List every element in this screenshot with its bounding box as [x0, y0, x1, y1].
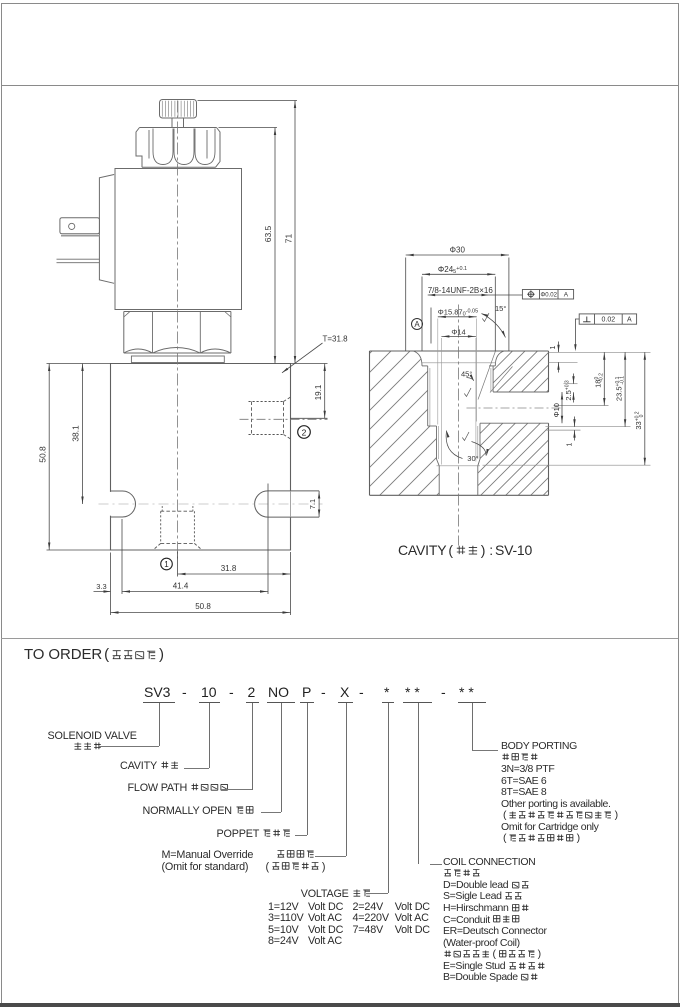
svg-text:41.4: 41.4	[173, 582, 189, 591]
svg-text:2: 2	[302, 427, 307, 437]
svg-text:A: A	[627, 317, 632, 324]
svg-text:23.5+0.1-0.1: 23.5+0.1-0.1	[615, 376, 626, 401]
svg-text:33+0.20: 33+0.20	[634, 411, 645, 429]
svg-text:7/8-14UNF-2B×16: 7/8-14UNF-2B×16	[428, 286, 494, 295]
svg-text:15°: 15°	[495, 304, 506, 313]
svg-text:63.5: 63.5	[263, 225, 273, 242]
svg-text:2.5+0.3: 2.5+0.3	[564, 380, 573, 401]
svg-text:71: 71	[283, 234, 293, 244]
svg-text:38.1: 38.1	[71, 425, 81, 442]
svg-text:31.8: 31.8	[221, 564, 237, 573]
svg-text:180-0.2: 180-0.2	[594, 373, 605, 388]
svg-text:7.1: 7.1	[308, 499, 317, 509]
svg-text:19.1: 19.1	[314, 384, 323, 400]
svg-text:3.3: 3.3	[96, 582, 106, 591]
svg-text:A: A	[414, 320, 420, 329]
svg-text:Φ14: Φ14	[451, 328, 465, 337]
svg-text:50.8: 50.8	[37, 446, 47, 463]
svg-text:Φ245+0.1: Φ245+0.1	[438, 265, 467, 275]
svg-text:A: A	[564, 292, 569, 299]
svg-text:30°: 30°	[467, 454, 478, 463]
svg-text:Φ10: Φ10	[552, 403, 561, 417]
svg-text:Φ30: Φ30	[450, 246, 466, 255]
svg-text:1: 1	[164, 560, 169, 569]
svg-text:1: 1	[567, 442, 574, 446]
svg-text:T=31.8: T=31.8	[323, 335, 349, 344]
svg-text:50.8: 50.8	[195, 602, 211, 611]
svg-text:Φ0.02: Φ0.02	[540, 293, 557, 299]
svg-text:1: 1	[550, 345, 557, 349]
svg-text:0.02: 0.02	[601, 317, 615, 324]
svg-text:45°: 45°	[461, 370, 472, 379]
